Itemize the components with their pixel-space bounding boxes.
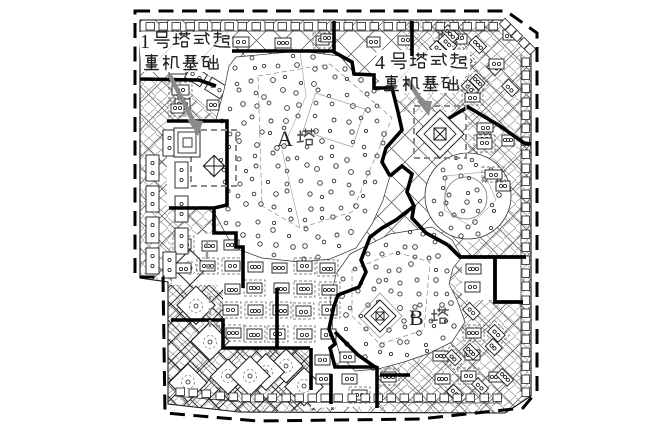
svg-text:4: 4 — [375, 52, 385, 74]
svg-text:A: A — [277, 126, 293, 151]
svg-text:1: 1 — [140, 31, 150, 53]
svg-text:B: B — [409, 305, 424, 330]
